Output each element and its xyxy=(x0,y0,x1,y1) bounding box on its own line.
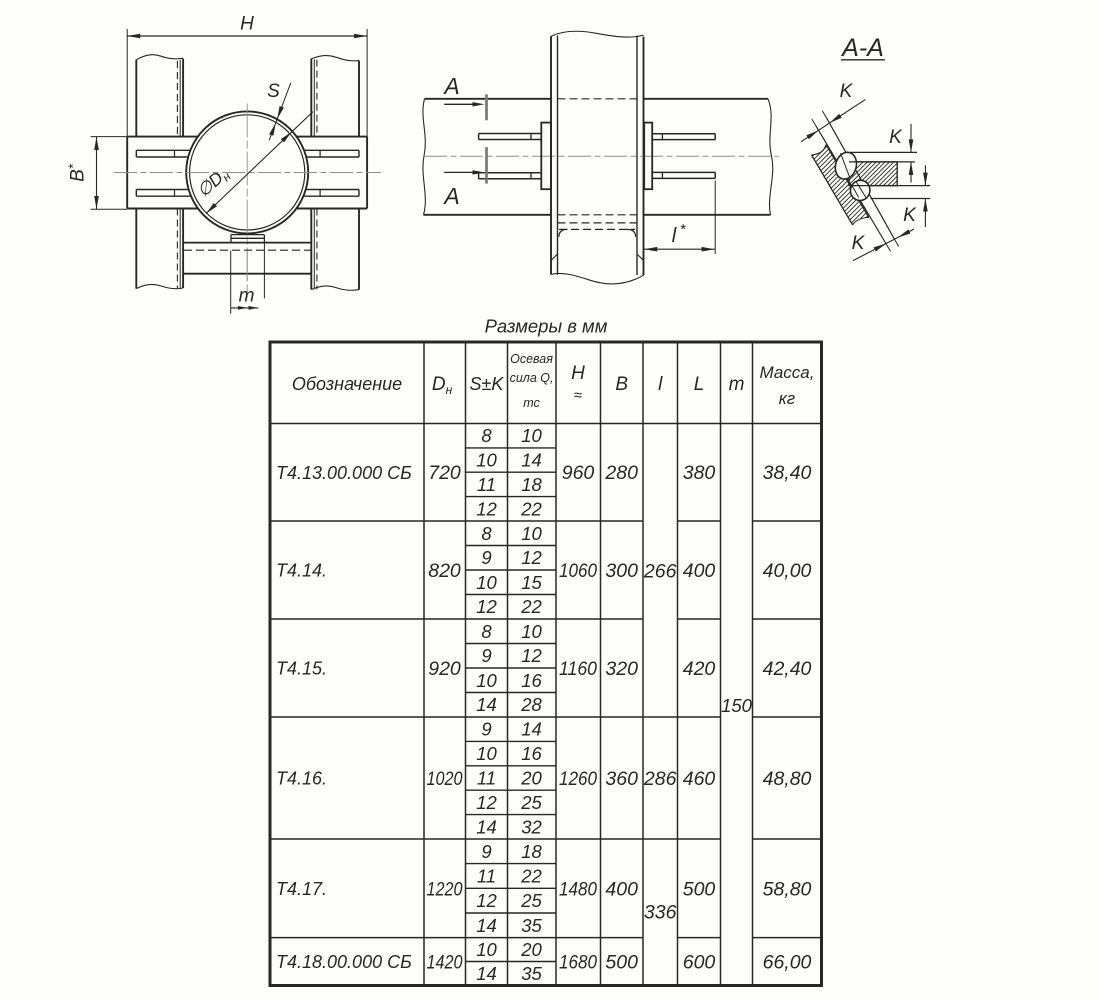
svg-text:H: H xyxy=(571,363,585,384)
svg-text:10: 10 xyxy=(521,425,542,446)
svg-text:25: 25 xyxy=(520,792,542,813)
svg-text:32: 32 xyxy=(521,816,542,837)
svg-text:150: 150 xyxy=(721,695,753,716)
svg-text:12: 12 xyxy=(476,498,497,519)
svg-text:12: 12 xyxy=(476,890,497,911)
svg-text:1020: 1020 xyxy=(427,768,463,790)
svg-text:14: 14 xyxy=(476,915,497,936)
svg-text:1220: 1220 xyxy=(427,878,463,900)
svg-text:22: 22 xyxy=(520,866,542,887)
svg-text:380: 380 xyxy=(683,462,716,484)
svg-text:14: 14 xyxy=(521,450,542,471)
svg-text:Т4.14.: Т4.14. xyxy=(276,561,327,581)
svg-text:500: 500 xyxy=(605,952,638,974)
svg-text:Т4.15.: Т4.15. xyxy=(276,659,327,679)
svg-text:A: A xyxy=(442,73,459,99)
svg-text:12: 12 xyxy=(521,547,542,568)
svg-text:35: 35 xyxy=(521,915,542,936)
svg-text:1420: 1420 xyxy=(427,952,463,974)
svg-text:18: 18 xyxy=(521,474,542,495)
svg-text:360: 360 xyxy=(605,768,638,790)
svg-text:сила Q,: сила Q, xyxy=(510,371,554,385)
svg-text:336: 336 xyxy=(644,902,677,924)
svg-text:600: 600 xyxy=(683,952,716,974)
svg-text:m: m xyxy=(729,374,745,395)
svg-text:K: K xyxy=(889,127,903,148)
svg-text:9: 9 xyxy=(481,547,491,568)
svg-text:1680: 1680 xyxy=(559,952,597,974)
svg-text:Т4.17.: Т4.17. xyxy=(276,879,327,899)
svg-text:кг: кг xyxy=(779,389,795,408)
svg-text:11: 11 xyxy=(477,768,496,789)
svg-text:1260: 1260 xyxy=(559,768,597,790)
svg-text:Масса,: Масса, xyxy=(760,363,815,382)
svg-text:16: 16 xyxy=(521,743,542,764)
svg-text:K: K xyxy=(852,233,866,254)
svg-text:48,80: 48,80 xyxy=(763,768,812,790)
svg-text:820: 820 xyxy=(428,560,461,582)
svg-text:A-A: A-A xyxy=(840,34,884,62)
svg-text:12: 12 xyxy=(476,792,497,813)
svg-text:22: 22 xyxy=(520,498,542,519)
svg-text:8: 8 xyxy=(481,621,492,642)
svg-text:10: 10 xyxy=(521,523,542,544)
svg-text:Т4.13.00.000 СБ: Т4.13.00.000 СБ xyxy=(276,463,412,483)
svg-text:8: 8 xyxy=(481,425,492,446)
svg-text:K: K xyxy=(903,205,917,226)
svg-text:920: 920 xyxy=(428,658,461,680)
svg-text:10: 10 xyxy=(476,939,497,960)
svg-text:400: 400 xyxy=(683,560,716,582)
svg-text:H: H xyxy=(240,14,254,35)
svg-text:9: 9 xyxy=(481,645,491,666)
svg-text:25: 25 xyxy=(520,890,542,911)
svg-text:400: 400 xyxy=(605,878,638,900)
svg-text:280: 280 xyxy=(604,462,638,484)
svg-text:m: m xyxy=(239,286,255,307)
svg-text:12: 12 xyxy=(521,645,542,666)
svg-text:14: 14 xyxy=(476,816,497,837)
svg-text:10: 10 xyxy=(476,743,497,764)
svg-text:1160: 1160 xyxy=(559,658,597,680)
svg-text:A: A xyxy=(442,183,459,209)
svg-text:10: 10 xyxy=(521,621,542,642)
svg-text:20: 20 xyxy=(520,939,542,960)
svg-text:720: 720 xyxy=(428,462,461,484)
svg-text:58,80: 58,80 xyxy=(763,878,812,900)
svg-text:Т4.16.: Т4.16. xyxy=(276,769,327,789)
svg-text:35: 35 xyxy=(521,963,542,984)
svg-text:B: B xyxy=(615,374,628,395)
svg-text:Т4.18.00.000 СБ: Т4.18.00.000 СБ xyxy=(276,952,412,972)
svg-text:16: 16 xyxy=(521,670,542,691)
svg-text:960: 960 xyxy=(562,462,595,484)
svg-text:≈: ≈ xyxy=(574,387,582,404)
svg-text:L: L xyxy=(694,374,705,395)
svg-text:420: 420 xyxy=(683,658,716,680)
svg-text:500: 500 xyxy=(683,878,716,900)
svg-text:14: 14 xyxy=(476,694,497,715)
svg-text:8: 8 xyxy=(481,523,492,544)
svg-text:11: 11 xyxy=(477,866,496,887)
svg-text:38,40: 38,40 xyxy=(763,462,812,484)
svg-text:66,00: 66,00 xyxy=(763,952,812,974)
svg-text:20: 20 xyxy=(520,768,542,789)
svg-text:1060: 1060 xyxy=(559,560,597,582)
svg-text:тс: тс xyxy=(523,396,540,410)
svg-text:S±K: S±K xyxy=(470,374,505,394)
svg-text:14: 14 xyxy=(521,719,542,740)
svg-text:11: 11 xyxy=(477,474,496,495)
svg-text:K: K xyxy=(840,81,854,102)
svg-text:42,40: 42,40 xyxy=(763,658,812,680)
svg-text:1480: 1480 xyxy=(559,878,597,900)
svg-text:14: 14 xyxy=(476,963,497,984)
svg-text:300: 300 xyxy=(605,560,638,582)
svg-text:10: 10 xyxy=(476,450,497,471)
svg-text:Осевая: Осевая xyxy=(510,352,553,366)
svg-text:18: 18 xyxy=(521,841,542,862)
svg-text:l: l xyxy=(672,225,677,247)
svg-text:*: * xyxy=(680,221,687,238)
svg-text:S: S xyxy=(267,81,280,102)
svg-text:320: 320 xyxy=(605,658,638,680)
svg-text:Обозначение: Обозначение xyxy=(292,374,402,394)
svg-text:B*: B* xyxy=(66,163,89,182)
svg-text:9: 9 xyxy=(481,841,491,862)
svg-text:40,00: 40,00 xyxy=(763,560,812,582)
svg-text:10: 10 xyxy=(476,572,497,593)
svg-text:12: 12 xyxy=(476,596,497,617)
svg-text:Dн: Dн xyxy=(432,374,453,397)
svg-text:286: 286 xyxy=(643,768,677,790)
svg-text:15: 15 xyxy=(521,572,542,593)
svg-text:266: 266 xyxy=(643,561,677,583)
svg-text:l: l xyxy=(658,374,663,395)
svg-text:22: 22 xyxy=(520,596,542,617)
svg-text:9: 9 xyxy=(481,719,491,740)
svg-text:10: 10 xyxy=(476,670,497,691)
svg-text:28: 28 xyxy=(520,694,542,715)
svg-text:Размеры в мм: Размеры в мм xyxy=(485,316,608,337)
svg-text:460: 460 xyxy=(683,768,716,790)
